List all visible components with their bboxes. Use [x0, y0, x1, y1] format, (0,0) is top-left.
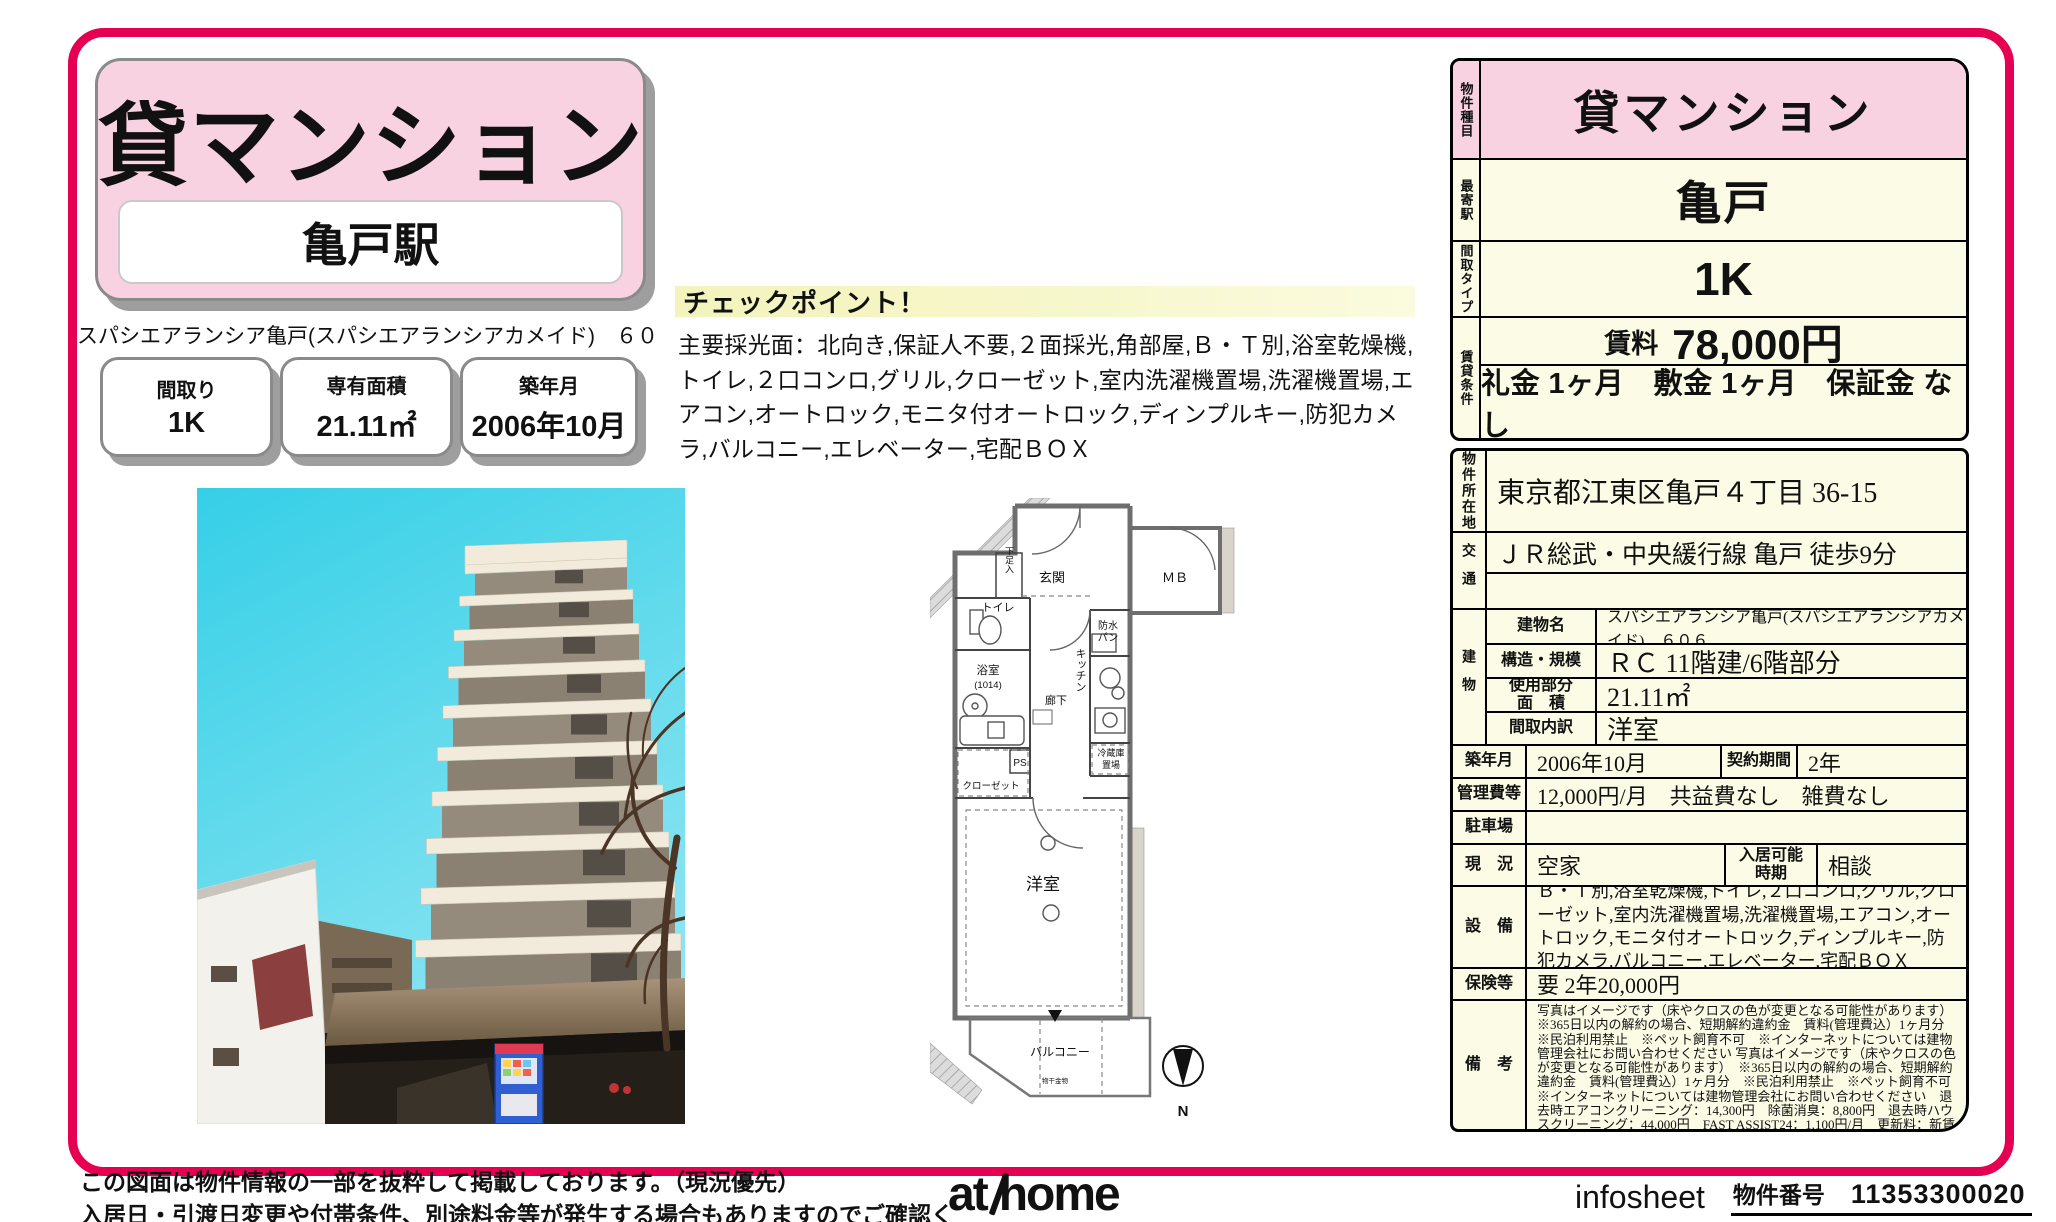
property-number-value: 11353300020 [1851, 1179, 2026, 1210]
property-number-label: 物件番号 [1733, 1176, 1825, 1210]
layout-detail-label: 間取内訳 [1485, 711, 1595, 744]
layout-detail-value: 洋室 [1595, 711, 1966, 744]
compass: N [1163, 1046, 1203, 1120]
movein-value: 相談 [1816, 845, 1966, 885]
pan-label-1: 防水 [1098, 619, 1118, 632]
checkpoint-body: 主要採光面：北向き,保証人不要,２面採光,角部屋,Ｂ・Ｔ別,浴室乾燥機,トイレ,… [678, 328, 1426, 466]
badge-built: 築年月 2006年10月 [460, 357, 638, 457]
rent-label: 賃料 [1604, 322, 1658, 361]
laundry-pole-label: 物干金物 [1042, 1076, 1069, 1085]
parking-label: 駐車場 [1453, 812, 1525, 843]
property-type-box: 貸マンション 亀戸駅 [95, 58, 646, 301]
compass-n-label: N [1178, 1103, 1189, 1120]
insurance-value: 要 2年20,000円 [1525, 969, 1966, 999]
badge-area-label: 専有面積 [327, 370, 407, 399]
badge-layout-label: 間取り [157, 374, 217, 403]
closet-label: クローゼット [962, 780, 1019, 792]
tower-window [575, 757, 613, 779]
floor-plan-art: N 玄関 ＭＢ 下足入 トイレ 防水 パン 浴室 (1014) キッチン 廊下 … [930, 498, 1260, 1146]
access-value: ＪＲ総武・中央緩行線 亀戸 徒歩9分 [1485, 533, 1966, 572]
hall-label: 廊下 [1045, 693, 1067, 707]
bath-size-label: (1014) [974, 680, 1001, 691]
fridge-label-1: 冷蔵庫 [1097, 747, 1124, 758]
detail-table: 物件所在地 東京都江東区亀戸４丁目 36-15 交通 ＪＲ総武・中央緩行線 亀戸… [1450, 448, 1969, 1132]
summary-type-label: 物件種目 [1453, 61, 1479, 158]
location-value: 東京都江東区亀戸４丁目 36-15 [1485, 451, 1966, 531]
parking-value [1525, 812, 1966, 843]
equipment-value: Ｂ・Ｔ別,浴室乾燥機,トイレ,２口コンロ,グリル,クローゼット,室内洗濯機置場,… [1525, 887, 1966, 967]
tower-window [571, 714, 607, 734]
tower-window [583, 850, 625, 875]
station-box: 亀戸駅 [118, 200, 623, 284]
insurance-label: 保険等 [1453, 969, 1525, 999]
contract-label: 契約期間 [1720, 746, 1796, 777]
station-name: 亀戸駅 [302, 209, 440, 275]
floor-plan: N 玄関 ＭＢ 下足入 トイレ 防水 パン 浴室 (1014) キッチン 廊下 … [930, 498, 1260, 1146]
vending-machine [495, 1044, 543, 1124]
area-label: 使用部分 面 積 [1485, 677, 1595, 711]
location-label: 物件所在地 [1453, 451, 1485, 531]
tower-floor [431, 897, 675, 940]
shoe-box-label: 下足入 [1004, 547, 1014, 574]
building-name-label: 建物名 [1485, 610, 1595, 643]
built-value: 2006年10月 [1525, 746, 1720, 777]
property-number-group: 物件番号 11353300020 [1731, 1176, 2032, 1216]
disclaimer-line-1: この図面は物件情報の一部を抜粋して掲載しております。（現況優先） [80, 1166, 960, 1199]
summary-terms-value: 礼金 1ヶ月 敷金 1ヶ月 保証金 なし [1479, 364, 1966, 438]
structure-value: ＲＣ 11階建/6階部分 [1595, 643, 1966, 677]
summary-layout-label: 間取タイプ [1453, 240, 1479, 316]
summary-table: 物件種目 貸マンション 最寄駅 亀戸 間取タイプ 1K 賃貸条件 賃料 78,0… [1450, 58, 1969, 441]
tower-window [563, 637, 595, 654]
genkan-label: 玄関 [1039, 570, 1065, 585]
summary-rent: 賃料 78,000円 [1479, 316, 1966, 364]
summary-station-label: 最寄駅 [1453, 158, 1479, 240]
remarks-value: 写真はイメージです（床やクロスの色が変更となる可能性があります） ※365日以内… [1525, 1001, 1966, 1129]
status-value: 空家 [1525, 845, 1724, 885]
badge-area: 専有面積 21.11㎡ [280, 357, 453, 457]
summary-terms-label: 賃貸条件 [1453, 316, 1479, 438]
area-value: 21.11㎡ [1595, 677, 1966, 711]
ps-label: PS [1013, 758, 1027, 769]
white-building [197, 860, 329, 1124]
footer-right: infosheet 物件番号 11353300020 [1575, 1176, 2032, 1216]
badge-layout-value: 1K [168, 407, 205, 440]
pan-label-2: パン [1098, 632, 1119, 644]
kitchen-label: キッチン [1074, 648, 1086, 692]
summary-layout-value: 1K [1479, 240, 1966, 316]
badge-area-value: 21.11㎡ [317, 403, 417, 445]
badge-layout: 間取り 1K [100, 357, 273, 457]
tower-window [587, 900, 631, 927]
building-photo [197, 488, 685, 1124]
built-label: 築年月 [1453, 746, 1525, 777]
access-label: 交通 [1453, 533, 1485, 608]
infosheet-page: 貸マンション 亀戸駅 スパシエアランシア亀戸(スパシエアランシアカメイド) ６０… [0, 0, 2056, 1222]
fees-label: 管理費等 [1453, 779, 1525, 810]
checkpoint-band: チェックポイント！ [675, 286, 1415, 317]
badge-built-label: 築年月 [519, 370, 579, 399]
infosheet-label: infosheet [1575, 1179, 1705, 1216]
tower-window [559, 602, 589, 617]
fridge-label-2: 置場 [1102, 759, 1120, 770]
summary-type-value: 貸マンション [1479, 61, 1966, 158]
athome-logo: at home [948, 1168, 1119, 1220]
mb-label: ＭＢ [1162, 570, 1188, 585]
logo-home-text: home [999, 1167, 1119, 1222]
tower-window [567, 674, 601, 692]
fees-value: 12,000円/月 共益費なし 雑費なし [1525, 779, 1966, 810]
contract-value: 2年 [1796, 746, 1966, 777]
building-name-value: スパシエアランシア亀戸(スパシエアランシアカメイド) ６０６ [1595, 610, 1966, 643]
bath-label: 浴室 [977, 663, 1000, 677]
summary-station-value: 亀戸 [1479, 158, 1966, 240]
access-value-2 [1485, 572, 1966, 608]
remarks-label: 備 考 [1453, 1001, 1525, 1129]
toilet-label: トイレ [982, 602, 1015, 614]
logo-at-text: at [948, 1167, 987, 1222]
tower-window [555, 570, 583, 583]
balcony-label: バルコニー [1030, 1045, 1090, 1059]
tower-window [579, 802, 619, 826]
movein-label: 入居可能 時期 [1724, 845, 1816, 885]
equipment-label: 設 備 [1453, 887, 1525, 967]
property-type-title: 貸マンション [98, 73, 643, 203]
footer-disclaimer: この図面は物件情報の一部を抜粋して掲載しております。（現況優先） 入居日・引渡日… [80, 1166, 960, 1222]
room-label: 洋室 [1026, 875, 1060, 894]
badge-built-value: 2006年10月 [472, 403, 627, 445]
disclaimer-line-2: 入居日・引渡日変更や付帯条件、別途料金等が発生する場合もありますのでご確認くださ… [80, 1199, 960, 1222]
building-label: 建物 [1453, 610, 1485, 744]
status-label: 現 況 [1453, 845, 1525, 885]
building-photo-art [197, 488, 685, 1124]
structure-label: 構造・規模 [1485, 643, 1595, 677]
checkpoint-title: チェックポイント！ [675, 283, 926, 320]
tower-floor [437, 847, 670, 888]
